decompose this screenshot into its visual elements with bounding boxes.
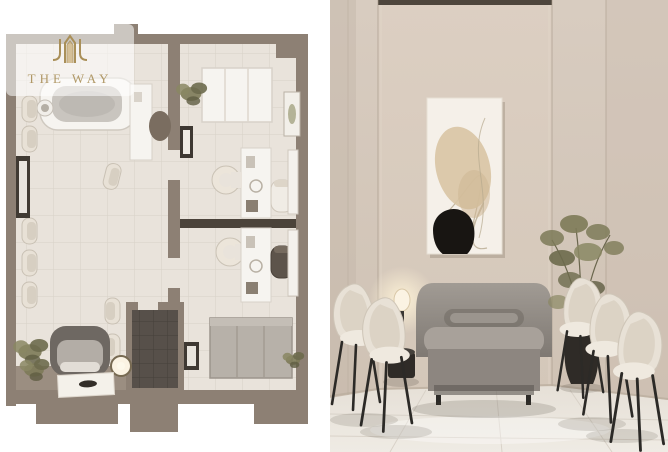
office2-wall-art: [184, 342, 199, 370]
reception-basin: [37, 100, 53, 116]
office1-wall-board: [288, 150, 298, 214]
wardrobe-cabinet: [202, 68, 272, 122]
property-listing-image: THE WAY: [0, 0, 668, 452]
interior-render-panel: [330, 0, 668, 452]
office2-wall-board: [288, 230, 298, 296]
floor-plan-graphic: [0, 0, 318, 452]
bathroom: [126, 302, 184, 394]
plan-sofa: [50, 326, 110, 376]
wall-tv: [16, 156, 30, 218]
office1-wall-screen: [180, 126, 193, 158]
lounge-rug: [57, 373, 114, 398]
office2-desk: [241, 228, 271, 302]
office-divider-wall: [180, 219, 296, 228]
reception-desk: [40, 78, 136, 130]
abstract-wall-art: [427, 98, 505, 258]
plan-floor-lamp: [111, 356, 131, 376]
interior-render-graphic: [330, 0, 668, 452]
staff-chair: [149, 111, 171, 141]
office1-desk: [241, 148, 271, 218]
office1-wall-frame: [284, 92, 300, 136]
floor-plan-panel: THE WAY: [0, 0, 318, 452]
sideboard-cabinet: [210, 318, 292, 378]
